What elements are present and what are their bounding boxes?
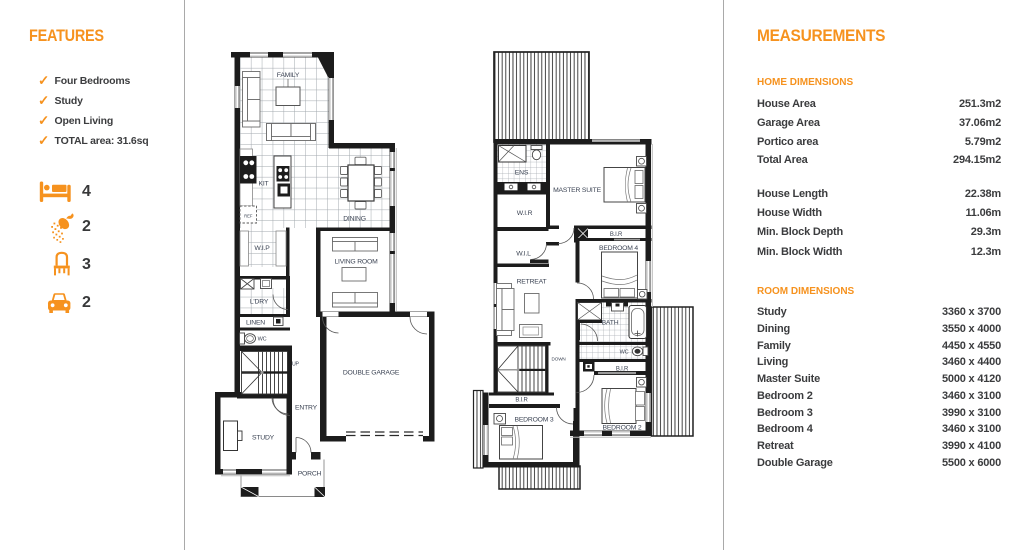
svg-text:LINEN: LINEN — [246, 320, 265, 327]
svg-text:FAMILY: FAMILY — [277, 72, 300, 79]
svg-text:DINING: DINING — [343, 216, 366, 223]
svg-text:REF: REF — [244, 214, 253, 219]
svg-text:WC: WC — [620, 350, 629, 356]
svg-text:BEDROOM 3: BEDROOM 3 — [515, 417, 554, 424]
svg-text:RETREAT: RETREAT — [517, 279, 547, 286]
svg-text:MASTER SUITE: MASTER SUITE — [553, 187, 601, 194]
svg-text:W.I.L: W.I.L — [516, 251, 531, 258]
svg-text:DOWN: DOWN — [552, 357, 566, 362]
svg-text:UP: UP — [292, 362, 300, 368]
svg-text:STUDY: STUDY — [252, 435, 275, 442]
svg-text:ENS: ENS — [515, 170, 529, 177]
svg-text:BEDROOM 4: BEDROOM 4 — [599, 245, 638, 252]
svg-text:PORCH: PORCH — [298, 471, 322, 478]
svg-text:L'DRY: L'DRY — [250, 299, 269, 306]
svg-text:LIVING ROOM: LIVING ROOM — [334, 259, 378, 266]
svg-text:W.I.P: W.I.P — [254, 245, 270, 252]
svg-text:DOUBLE GARAGE: DOUBLE GARAGE — [343, 370, 400, 377]
svg-text:BATH: BATH — [602, 320, 619, 327]
svg-text:ENTRY: ENTRY — [295, 405, 318, 412]
svg-text:B.I.R: B.I.R — [610, 232, 623, 238]
svg-text:KIT: KIT — [259, 181, 269, 188]
svg-text:W.I.R: W.I.R — [517, 210, 533, 217]
svg-text:B.I.R: B.I.R — [515, 398, 528, 404]
svg-text:B.I.R: B.I.R — [616, 367, 629, 373]
svg-text:BEDROOM 2: BEDROOM 2 — [603, 425, 642, 432]
svg-text:WC: WC — [258, 337, 267, 343]
